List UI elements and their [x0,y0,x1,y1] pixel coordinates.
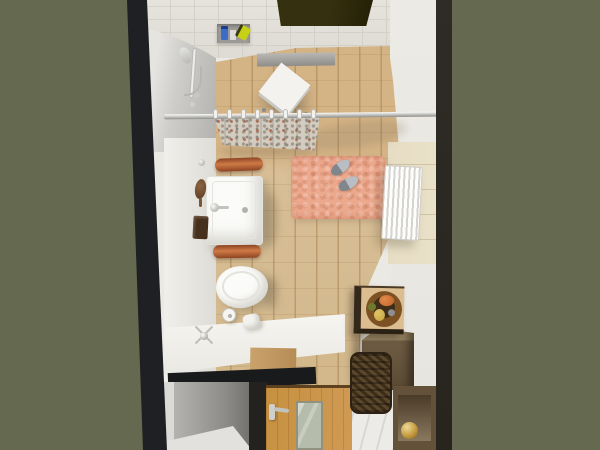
curtain-ring [213,109,218,119]
wicker-basket [350,352,392,414]
doorway-niche [163,382,252,450]
display-cabinet [393,386,440,450]
curtain-ring [297,109,302,119]
right-wall-edge [436,0,452,450]
soap-tray [192,216,208,240]
fruit-green [368,303,376,311]
basin-inner-edge [212,181,256,239]
sink-shadow [262,192,278,246]
toilet-paper-holder [222,308,236,322]
door-handle [274,407,289,413]
basin-faucet-spout [218,206,229,209]
curtain-ring [269,109,274,119]
shower-knob-small [190,102,195,107]
bathroom-top-view-render [0,0,600,450]
shampoo-bottle-blue [221,26,228,40]
chrome-wall-tap [193,323,215,347]
gold-sphere [401,422,418,439]
curtain-ring [241,109,246,119]
fruit-plum [388,309,395,316]
shower-bench-slab [257,52,335,66]
hairbrush-handle [199,198,202,207]
towel-rail-upper [215,157,263,172]
shower-knob [194,92,200,98]
stool-caster [262,108,266,112]
wall-valve [198,159,205,166]
entry-door [266,385,352,450]
niche-floor [163,424,252,450]
towel-rail-lower [213,245,261,259]
door-glass-insert [296,401,323,450]
curtain-ring [255,109,260,119]
fruit-pear [374,309,385,321]
toilet-seat-ring [221,270,261,303]
towel-radiator [381,165,423,241]
curtain-ring [311,109,316,119]
cabinet-top-display [354,286,405,335]
curtain-ring [227,109,232,119]
fruit-orange [379,295,394,306]
fruit-bowl [366,291,403,328]
toilet-paper-core [228,314,232,318]
skylight-window [277,0,373,26]
display-cabinet-interior [398,395,431,441]
curtain-ring [283,109,288,119]
washbasin [206,176,263,245]
basin-drain [242,207,248,213]
